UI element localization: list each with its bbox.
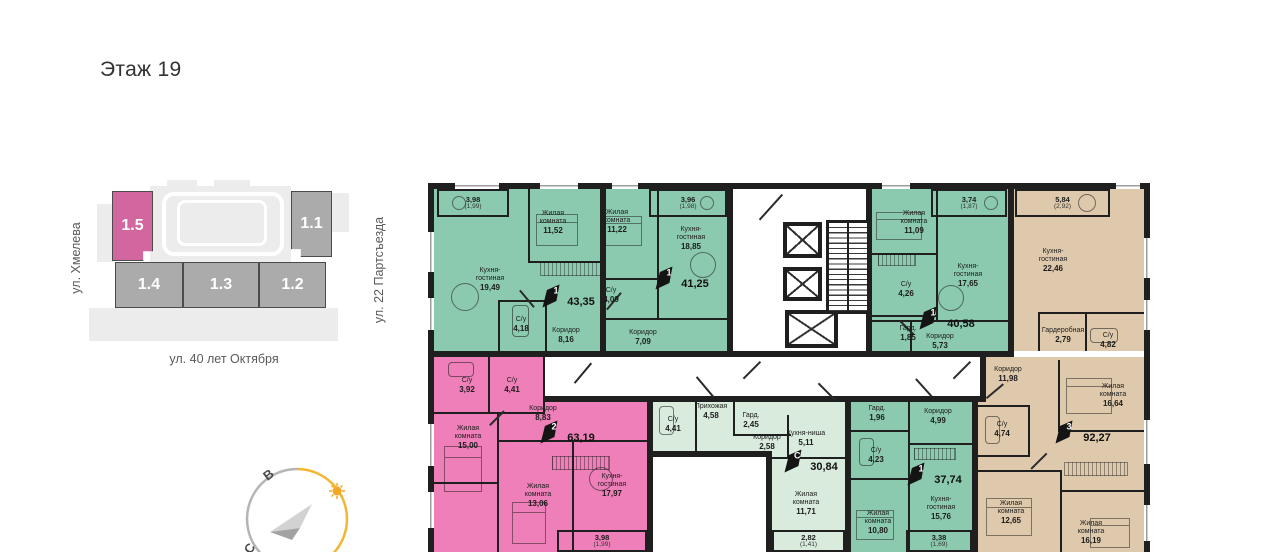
minimap-section-1-2[interactable]: 1.2	[259, 262, 326, 308]
bathtub-icon	[659, 406, 674, 435]
street-label-oktyabrya: ул. 40 лет Октября	[169, 352, 278, 366]
bed-icon	[512, 502, 546, 544]
bed-icon	[444, 446, 482, 492]
bed-icon	[604, 216, 642, 246]
table-icon	[984, 196, 998, 210]
bed-icon	[856, 510, 894, 540]
balcony-30-84[interactable]: 2,82 (1,41)	[772, 530, 845, 552]
staircase-icon	[826, 220, 870, 314]
floor-title: Этаж 19	[100, 58, 182, 82]
minimap-section-label: 1.1	[300, 215, 322, 233]
balcony-half-area: (1,99)	[594, 542, 611, 549]
table-icon	[452, 196, 466, 210]
balcony-half-area: (1,87)	[961, 204, 978, 211]
wardrobe-icon	[878, 254, 916, 266]
compass-arc-gray	[247, 469, 297, 552]
elevator-shaft-icon	[785, 310, 838, 348]
minimap-footprint	[89, 308, 338, 341]
balcony-half-area: (1,98)	[680, 204, 697, 211]
balcony-half-area: (1,41)	[800, 542, 817, 549]
bed-icon	[1066, 378, 1112, 414]
bathtub-icon	[985, 416, 1000, 444]
minimap-section-label: 1.3	[210, 276, 232, 294]
minimap-footprint	[167, 180, 197, 187]
apartment-total-area: 37,74	[934, 474, 962, 486]
minimap-section-label: 1.5	[121, 217, 143, 235]
minimap-section-label: 1.2	[281, 276, 303, 294]
bathtub-icon	[1090, 328, 1118, 343]
minimap-section-1-3[interactable]: 1.3	[183, 262, 259, 308]
elevator-shaft-icon	[783, 222, 822, 258]
bathtub-icon	[512, 305, 529, 337]
compass: В С	[236, 462, 358, 552]
minimap-footprint	[214, 180, 250, 187]
floor-page: Этаж 19 1.5 1.1 1.4 1.3 1.2 ул. Хмелева …	[0, 0, 1280, 552]
wardrobe-icon	[552, 456, 610, 470]
table-icon	[589, 467, 613, 491]
table-icon	[1078, 194, 1096, 212]
bed-icon	[876, 212, 922, 240]
balcony-41-25[interactable]: 3,96 (1,98)	[649, 189, 727, 217]
street-label-khmeleva: ул. Хмелева	[69, 222, 83, 293]
apartment-total-area: 41,25	[681, 278, 709, 290]
apartment-total-area: 40,58	[947, 318, 975, 330]
balcony-37-74[interactable]: 3,38 (1,69)	[906, 530, 972, 552]
balcony-63-19[interactable]: 3,98 (1,99)	[557, 530, 647, 552]
bed-icon	[1090, 518, 1130, 548]
bathtub-icon	[448, 362, 474, 377]
apartment-total-area: 92,27	[1083, 432, 1111, 444]
building-void	[653, 457, 766, 552]
apartment-total-area: 43,35	[567, 296, 595, 308]
balcony-half-area: (1,69)	[931, 542, 948, 549]
apartment-total-area: 63,19	[567, 432, 595, 444]
minimap-section-1-4[interactable]: 1.4	[115, 262, 183, 308]
compass-east-label: В	[260, 466, 277, 484]
minimap-section-label: 1.4	[138, 276, 160, 294]
balcony-half-area: (2,92)	[1054, 204, 1071, 211]
wardrobe-icon	[914, 448, 956, 460]
common-corridor	[545, 357, 980, 396]
compass-needle-light	[270, 504, 312, 532]
apartment-total-area: 30,84	[810, 461, 838, 473]
minimap-footprint	[97, 204, 113, 262]
bed-icon	[536, 214, 578, 246]
balcony-43-35[interactable]: 3,98 (1,99)	[437, 189, 509, 217]
balcony-half-area: (1,99)	[465, 204, 482, 211]
bathtub-icon	[859, 438, 874, 466]
elevator-shaft-icon	[783, 267, 822, 301]
table-icon	[690, 252, 716, 278]
bed-icon	[986, 498, 1032, 536]
minimap-courtyard-path	[177, 200, 267, 246]
street-label-partsezda: ул. 22 Партсъезда	[372, 217, 386, 323]
minimap-footprint	[332, 193, 349, 232]
minimap-section-1-5[interactable]: 1.5	[112, 191, 153, 261]
wardrobe-icon	[1064, 462, 1128, 476]
table-icon	[938, 285, 964, 311]
wardrobe-icon	[540, 262, 604, 276]
table-icon	[700, 196, 714, 210]
table-icon	[451, 283, 479, 311]
minimap-section-1-1[interactable]: 1.1	[291, 191, 332, 257]
